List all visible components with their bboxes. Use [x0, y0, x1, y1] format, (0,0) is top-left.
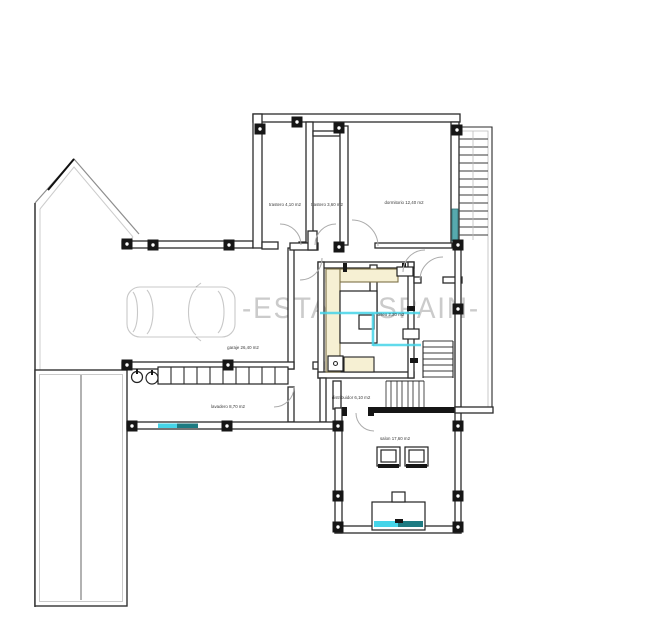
- stair-steps: [423, 341, 453, 377]
- wall: [288, 248, 294, 369]
- top-room-block: [253, 114, 460, 249]
- boundary-peak-inner: [40, 167, 133, 237]
- door-arc: [420, 257, 443, 280]
- column-icon: [255, 124, 266, 135]
- armchair-base: [406, 464, 427, 468]
- door-jamb: [368, 407, 374, 416]
- door-arc: [280, 224, 301, 245]
- column-icon: [333, 491, 344, 502]
- column-icon: [453, 421, 464, 432]
- wall: [455, 248, 461, 408]
- washer-mark: [136, 369, 138, 374]
- hall-walls: [290, 231, 318, 250]
- bench-strip-bright: [374, 521, 398, 527]
- column-icon: [222, 421, 233, 432]
- column-icon: [224, 240, 235, 251]
- fixture: [410, 358, 418, 363]
- wall: [375, 243, 452, 248]
- column-icon: [223, 360, 234, 371]
- wall: [320, 378, 326, 422]
- wall: [340, 126, 348, 245]
- wall: [262, 242, 278, 249]
- wc-fixture: [403, 329, 419, 339]
- column-icon: [453, 304, 464, 315]
- door-arc: [352, 220, 378, 246]
- stair-inner-rail: [459, 131, 488, 407]
- shelf: [397, 267, 413, 276]
- stair-steps: [459, 139, 488, 235]
- column-icon: [148, 240, 159, 251]
- stair-steps: [386, 381, 424, 407]
- wall: [253, 114, 460, 122]
- door-jamb: [342, 407, 347, 416]
- room-label-salon: salon 17,60 m2: [380, 436, 411, 441]
- bedroom-window: [452, 209, 458, 241]
- armchair-cushion: [409, 450, 424, 462]
- garage-walls: [122, 241, 324, 422]
- bench-mark: [395, 519, 403, 523]
- kitchen-counter-bottom: [344, 357, 374, 372]
- watermark: -ESTATE SPAIN-: [127, 283, 480, 341]
- fixture: [407, 306, 415, 311]
- column-icon: [453, 240, 464, 251]
- wall: [455, 407, 493, 413]
- driveway: [35, 370, 127, 606]
- window-sill-bright: [158, 424, 177, 429]
- armchair-cushion: [381, 450, 396, 462]
- room-label-aseo: aseo 2,20 m2: [378, 312, 405, 317]
- room-label-dormitorio: dormitorio 12,40 m2: [384, 200, 424, 205]
- column-icon: [127, 421, 138, 432]
- room-label-trastero1: trastero 4,10 m2: [269, 202, 302, 207]
- column-icon: [334, 123, 345, 134]
- window-sill-dark: [177, 424, 198, 429]
- room-label-trastero2: trastero 3,60 m2: [311, 202, 344, 207]
- column-icon: [452, 125, 463, 136]
- wall: [306, 122, 313, 243]
- floor-plan-canvas: -ESTATE SPAIN-: [0, 0, 653, 623]
- column-icon: [453, 522, 464, 533]
- wall: [318, 262, 324, 378]
- armchair-base: [378, 464, 399, 468]
- room-label-distribuidor: distribuidor 6,10 m2: [332, 395, 371, 400]
- exterior-staircase: [459, 127, 492, 410]
- bench-box: [392, 492, 405, 502]
- room-label-lavadero: lavadero 8,70 m2: [211, 404, 245, 409]
- column-icon: [122, 360, 133, 371]
- room-label-garaje: garaje 26,40 m2: [227, 345, 259, 350]
- wall: [318, 372, 414, 378]
- floor-plan-screenshot: -ESTATE SPAIN-: [0, 0, 653, 623]
- car-top-view-watermark-icon: [127, 283, 235, 341]
- sink: [328, 356, 343, 371]
- column-icon: [333, 421, 344, 432]
- stair-landing-wall: [374, 407, 455, 413]
- door-jamb: [343, 263, 347, 272]
- column-icon: [333, 522, 344, 533]
- door-arc: [315, 224, 336, 245]
- stair-outer-rail: [459, 127, 492, 410]
- washer-mark: [151, 370, 153, 375]
- column-icon: [334, 242, 345, 253]
- column-icon: [292, 117, 303, 128]
- boundary-accent: [48, 159, 74, 190]
- lavadero: [127, 367, 341, 429]
- column-icon: [122, 239, 133, 250]
- column-icon: [453, 491, 464, 502]
